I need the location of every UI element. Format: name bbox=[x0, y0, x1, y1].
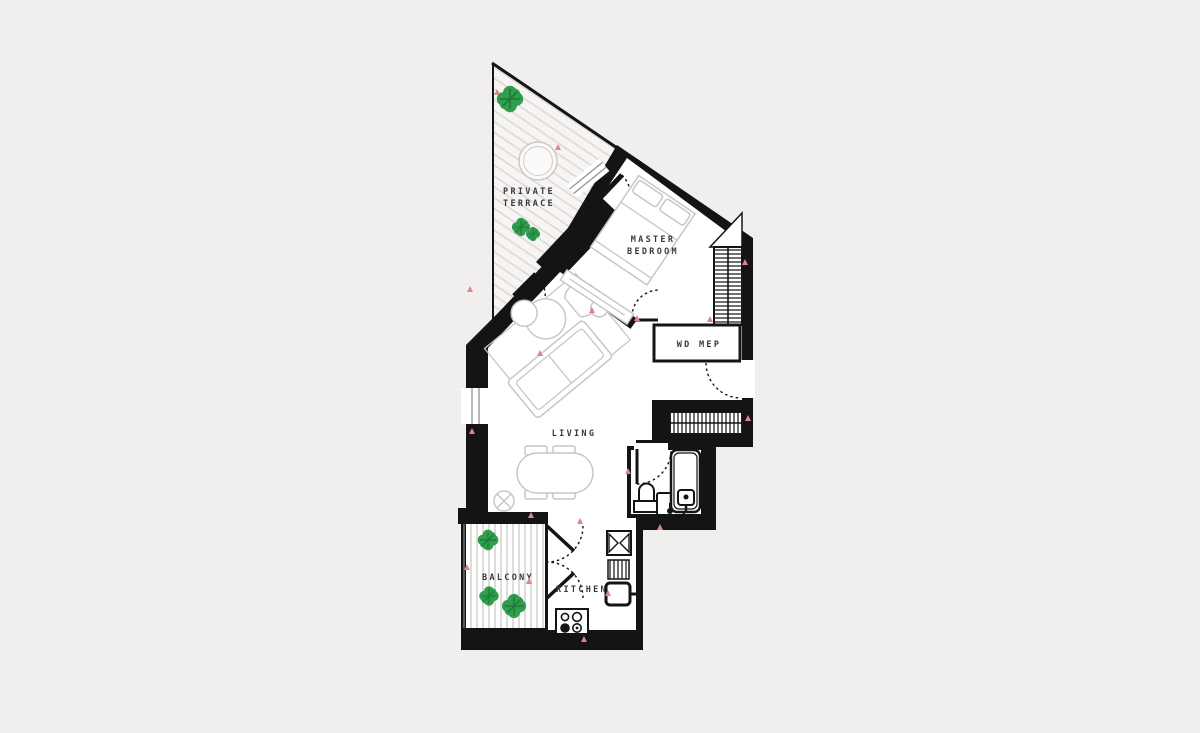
terrace-label: PRIVATE bbox=[503, 187, 555, 197]
dishwasher-icon bbox=[608, 560, 629, 579]
bathroom-door-opening bbox=[634, 443, 668, 451]
balcony-label: BALCONY bbox=[482, 573, 534, 583]
entry-door-opening bbox=[741, 360, 755, 398]
hall-closet-icon bbox=[652, 400, 742, 447]
bathtub-icon bbox=[671, 450, 700, 512]
master-bedroom-label: BEDROOM bbox=[627, 247, 679, 257]
living-label: LIVING bbox=[552, 429, 597, 439]
wall bbox=[536, 269, 549, 283]
kitchen-label: KITCHEN bbox=[556, 585, 608, 595]
terrace-label: TERRACE bbox=[503, 199, 555, 209]
bathroom-area bbox=[629, 443, 703, 516]
kitchen-sink-icon bbox=[607, 531, 631, 555]
terrace-table-icon bbox=[519, 142, 557, 180]
living-window bbox=[461, 388, 489, 424]
wd-mep-label: WD MEP bbox=[677, 340, 722, 350]
floorplan-canvas: PRIVATE TERRACE MASTER BEDROOM WD MEP LI… bbox=[0, 0, 1200, 733]
master-bedroom-label: MASTER bbox=[631, 235, 676, 245]
hob-icon bbox=[556, 609, 588, 634]
floor-plan-svg: PRIVATE TERRACE MASTER BEDROOM WD MEP LI… bbox=[0, 0, 1200, 733]
